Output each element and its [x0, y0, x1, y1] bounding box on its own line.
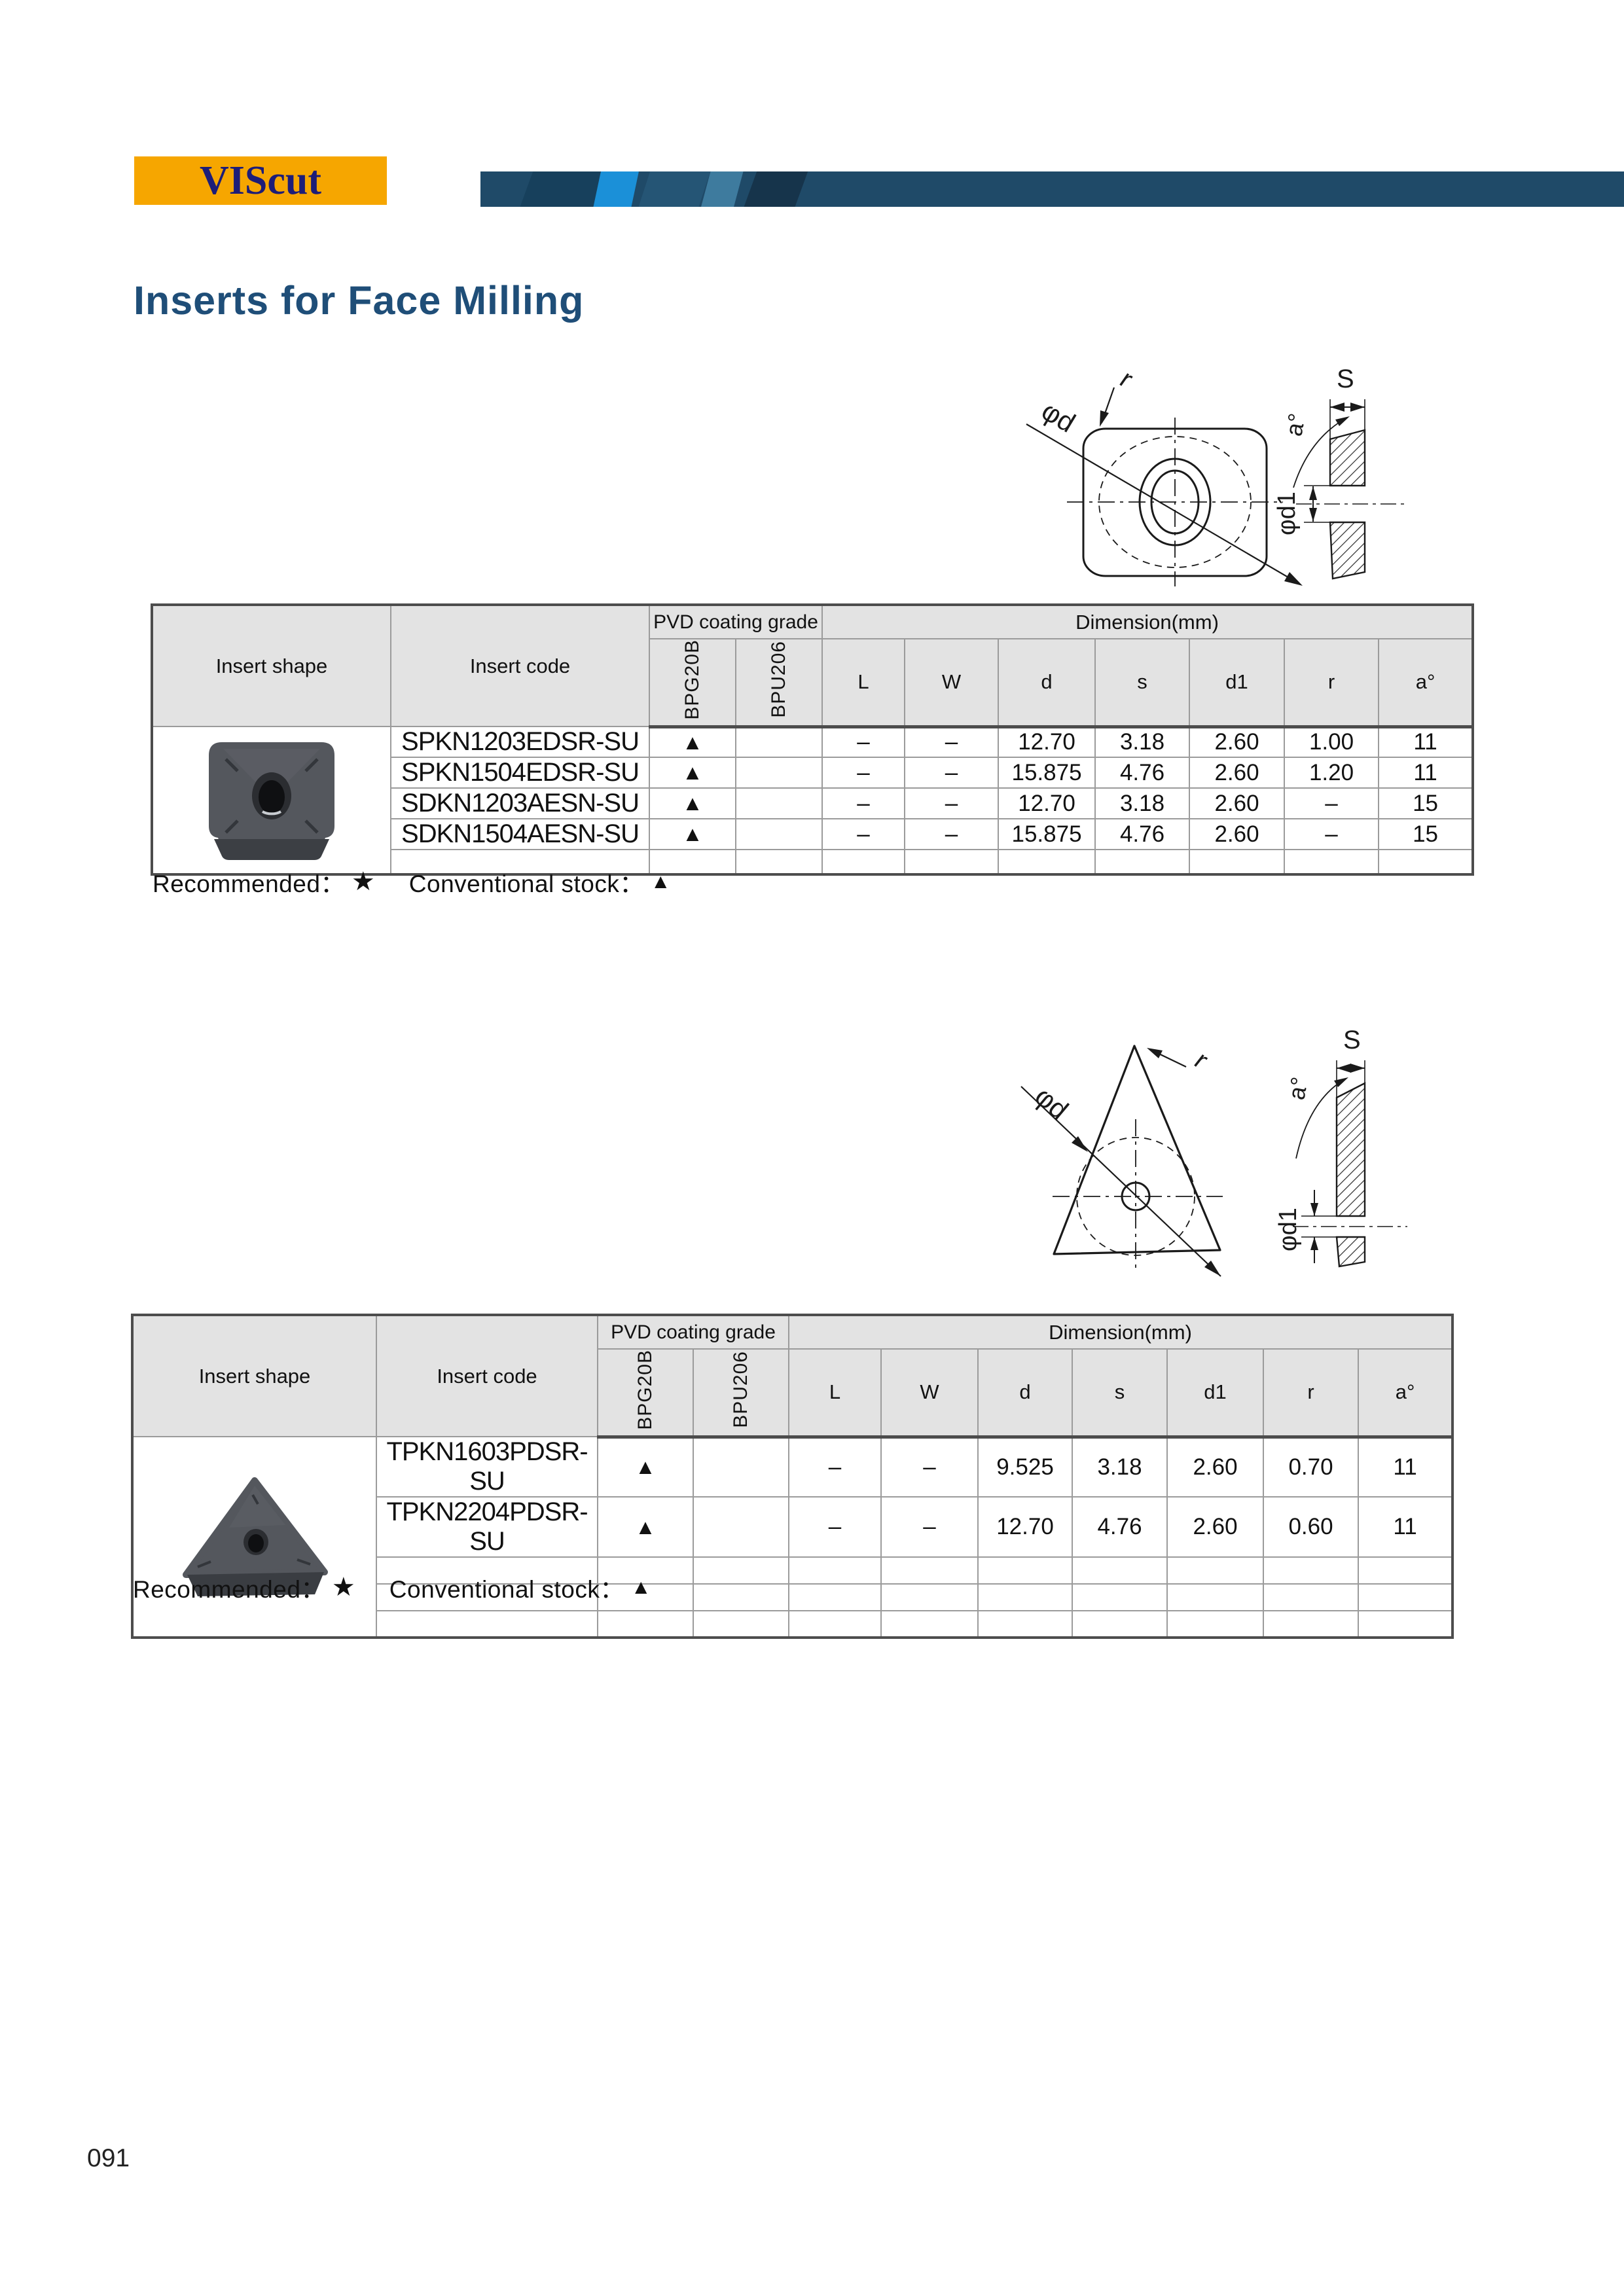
insert-photo-square [152, 726, 391, 874]
empty-cell [881, 1611, 978, 1638]
col-header-d1: d1 [1167, 1349, 1263, 1437]
dim-cell-W: – [881, 1497, 978, 1557]
empty-cell [978, 1611, 1072, 1638]
empty-cell [998, 850, 1095, 874]
dim-cell-W: – [905, 788, 998, 819]
col-header-L: L [789, 1349, 881, 1437]
insert-code-cell: TPKN1603PDSR-SU [376, 1437, 598, 1497]
col-header-insert-code: Insert code [391, 605, 649, 726]
dim-label-radius: r [1189, 1046, 1214, 1074]
dim-label-thickness: S [1343, 1026, 1361, 1054]
col-header-insert-code: Insert code [376, 1315, 598, 1437]
insert-code-cell: SDKN1203AESN-SU [391, 788, 649, 819]
col-header-r: r [1284, 639, 1379, 726]
legend-recommended-label: Recommended： [153, 864, 345, 899]
empty-cell [1189, 850, 1284, 874]
triangle-icon: ▲ [651, 870, 671, 893]
col-header-grade: BPG20B [649, 639, 736, 726]
grade-stock-cell [736, 819, 822, 850]
empty-cell [789, 1584, 881, 1611]
dim-cell-a: 11 [1379, 757, 1473, 788]
square-insert-photo-svg [208, 741, 336, 861]
empty-cell [598, 1611, 693, 1638]
dim-cell-r: 1.20 [1284, 757, 1379, 788]
empty-cell [1072, 1584, 1167, 1611]
empty-cell [1358, 1611, 1453, 1638]
dim-cell-d1: 2.60 [1189, 819, 1284, 850]
col-header-s: s [1072, 1349, 1167, 1437]
dim-cell-W: – [905, 726, 998, 757]
dim-cell-d1: 2.60 [1189, 757, 1284, 788]
empty-cell [978, 1584, 1072, 1611]
dim-cell-W: – [881, 1437, 978, 1497]
dim-cell-s: 3.18 [1095, 726, 1189, 757]
dim-cell-d: 15.875 [998, 819, 1095, 850]
brand-logo: VIScut [134, 156, 387, 205]
dim-cell-r: 1.00 [1284, 726, 1379, 757]
empty-cell [693, 1557, 789, 1584]
col-header-W: W [905, 639, 998, 726]
stock-legend: Recommended： ★ Conventional stock： ▲ [133, 1570, 651, 1605]
empty-cell [1072, 1611, 1167, 1638]
empty-cell [1358, 1584, 1453, 1611]
empty-cell [376, 1611, 598, 1638]
empty-cell [1379, 850, 1473, 874]
star-icon: ★ [332, 1572, 355, 1602]
insert-photo-triangle [132, 1437, 376, 1638]
dim-cell-s: 4.76 [1095, 819, 1189, 850]
dim-cell-d: 15.875 [998, 757, 1095, 788]
square-insert-diagram-svg: φd r S a° φd1 [943, 353, 1414, 615]
grade-stock-cell [736, 788, 822, 819]
col-header-grade: BPU206 [693, 1349, 789, 1437]
grade-label: BPG20B [636, 1350, 655, 1430]
legend-stock-label: Conventional stock： [409, 864, 644, 899]
dim-cell-a: 15 [1379, 819, 1473, 850]
dim-cell-d: 12.70 [998, 788, 1095, 819]
col-header-d: d [978, 1349, 1072, 1437]
empty-cell [789, 1611, 881, 1638]
dim-cell-a: 11 [1358, 1437, 1453, 1497]
page-number: 091 [87, 2144, 130, 2173]
grade-stock-cell [693, 1437, 789, 1497]
dim-cell-s: 3.18 [1095, 788, 1189, 819]
insert-code-cell: SDKN1504AESN-SU [391, 819, 649, 850]
empty-cell [1072, 1557, 1167, 1584]
col-header-dimension: Dimension(mm) [822, 605, 1473, 639]
dim-cell-a: 11 [1358, 1497, 1453, 1557]
banner-swoosh-mid [636, 171, 713, 207]
col-header-pvd: PVD coating grade [598, 1315, 789, 1349]
empty-cell [1263, 1611, 1358, 1638]
empty-cell [1167, 1611, 1263, 1638]
dim-cell-s: 3.18 [1072, 1437, 1167, 1497]
dim-label-hole: φd1 [1274, 1208, 1302, 1251]
dim-cell-a: 11 [1379, 726, 1473, 757]
dim-cell-a: 15 [1379, 788, 1473, 819]
grade-stock-cell: ▲ [649, 726, 736, 757]
empty-cell [905, 850, 998, 874]
brand-logo-text: VIScut [200, 158, 321, 204]
insert-code-cell: SPKN1203EDSR-SU [391, 726, 649, 757]
empty-cell [693, 1584, 789, 1611]
col-header-a: a° [1379, 639, 1473, 726]
empty-cell [1167, 1584, 1263, 1611]
col-header-dimension: Dimension(mm) [789, 1315, 1453, 1349]
grade-stock-cell: ▲ [649, 757, 736, 788]
grade-label: BPG20B [683, 639, 702, 720]
grade-stock-cell: ▲ [598, 1497, 693, 1557]
legend-recommended-label: Recommended： [133, 1570, 325, 1605]
empty-cell [789, 1557, 881, 1584]
dim-cell-L: – [822, 726, 905, 757]
dim-cell-d: 9.525 [978, 1437, 1072, 1497]
inserts-table-square: Insert shape Insert code PVD coating gra… [151, 603, 1474, 876]
col-header-grade: BPU206 [736, 639, 822, 726]
empty-cell [1263, 1584, 1358, 1611]
dim-cell-r: 0.70 [1263, 1437, 1358, 1497]
star-icon: ★ [352, 867, 375, 897]
col-header-d1: d1 [1189, 639, 1284, 726]
dim-cell-L: – [822, 788, 905, 819]
col-header-grade: BPG20B [598, 1349, 693, 1437]
dim-cell-r: 0.60 [1263, 1497, 1358, 1557]
dim-cell-d1: 2.60 [1167, 1497, 1263, 1557]
dim-cell-d: 12.70 [978, 1497, 1072, 1557]
page-title: Inserts for Face Milling [134, 278, 584, 323]
col-header-insert-shape: Insert shape [132, 1315, 376, 1437]
empty-cell [1095, 850, 1189, 874]
grade-label: BPU206 [769, 641, 789, 718]
legend-stock-label: Conventional stock： [389, 1570, 624, 1605]
empty-cell [1284, 850, 1379, 874]
empty-cell [693, 1611, 789, 1638]
dim-label-angle: a° [1283, 1075, 1313, 1102]
col-header-L: L [822, 639, 905, 726]
dim-cell-d: 12.70 [998, 726, 1095, 757]
dim-cell-W: – [905, 819, 998, 850]
empty-cell [1358, 1557, 1453, 1584]
grade-stock-cell [693, 1497, 789, 1557]
insert-code-cell: SPKN1504EDSR-SU [391, 757, 649, 788]
col-header-d: d [998, 639, 1095, 726]
dim-cell-d1: 2.60 [1189, 726, 1284, 757]
empty-cell [1167, 1557, 1263, 1584]
dim-cell-L: – [789, 1497, 881, 1557]
col-header-s: s [1095, 639, 1189, 726]
dim-cell-L: – [789, 1437, 881, 1497]
dim-cell-W: – [905, 757, 998, 788]
col-header-W: W [881, 1349, 978, 1437]
dim-cell-s: 4.76 [1095, 757, 1189, 788]
triangle-insert-diagram: φd r S a° φd1 [943, 1021, 1414, 1283]
dim-label-thickness: S [1337, 365, 1354, 393]
dim-label-angle: a° [1280, 411, 1310, 438]
dim-cell-r: – [1284, 788, 1379, 819]
dim-cell-r: – [1284, 819, 1379, 850]
col-header-r: r [1263, 1349, 1358, 1437]
triangle-insert-diagram-svg: φd r S a° φd1 [943, 1021, 1414, 1283]
dim-label-radius: r [1115, 365, 1138, 393]
empty-cell [978, 1557, 1072, 1584]
dim-cell-s: 4.76 [1072, 1497, 1167, 1557]
header-banner [480, 171, 1624, 207]
grade-stock-cell [736, 757, 822, 788]
catalog-page: VIScut Inserts for Face Milling [0, 0, 1624, 2296]
col-header-pvd: PVD coating grade [649, 605, 822, 639]
empty-cell [736, 850, 822, 874]
insert-code-cell: TPKN2204PDSR-SU [376, 1497, 598, 1557]
empty-cell [822, 850, 905, 874]
dim-label-hole: φd1 [1273, 492, 1301, 535]
grade-stock-cell: ▲ [649, 788, 736, 819]
grade-stock-cell [736, 726, 822, 757]
dim-cell-L: – [822, 757, 905, 788]
dim-cell-d1: 2.60 [1189, 788, 1284, 819]
banner-swoosh-navy [740, 171, 810, 207]
dim-cell-L: – [822, 819, 905, 850]
stock-legend: Recommended： ★ Conventional stock： ▲ [153, 864, 671, 899]
dim-cell-d1: 2.60 [1167, 1437, 1263, 1497]
grade-stock-cell: ▲ [598, 1437, 693, 1497]
dim-label-diameter: φd [1036, 395, 1081, 438]
triangle-icon: ▲ [631, 1575, 651, 1599]
empty-cell [1263, 1557, 1358, 1584]
col-header-insert-shape: Insert shape [152, 605, 391, 726]
empty-cell [881, 1584, 978, 1611]
empty-cell [881, 1557, 978, 1584]
square-insert-diagram: φd r S a° φd1 [943, 353, 1414, 615]
grade-stock-cell: ▲ [649, 819, 736, 850]
grade-label: BPU206 [731, 1351, 751, 1428]
dim-label-diameter: φd [1029, 1081, 1074, 1126]
col-header-a: a° [1358, 1349, 1453, 1437]
